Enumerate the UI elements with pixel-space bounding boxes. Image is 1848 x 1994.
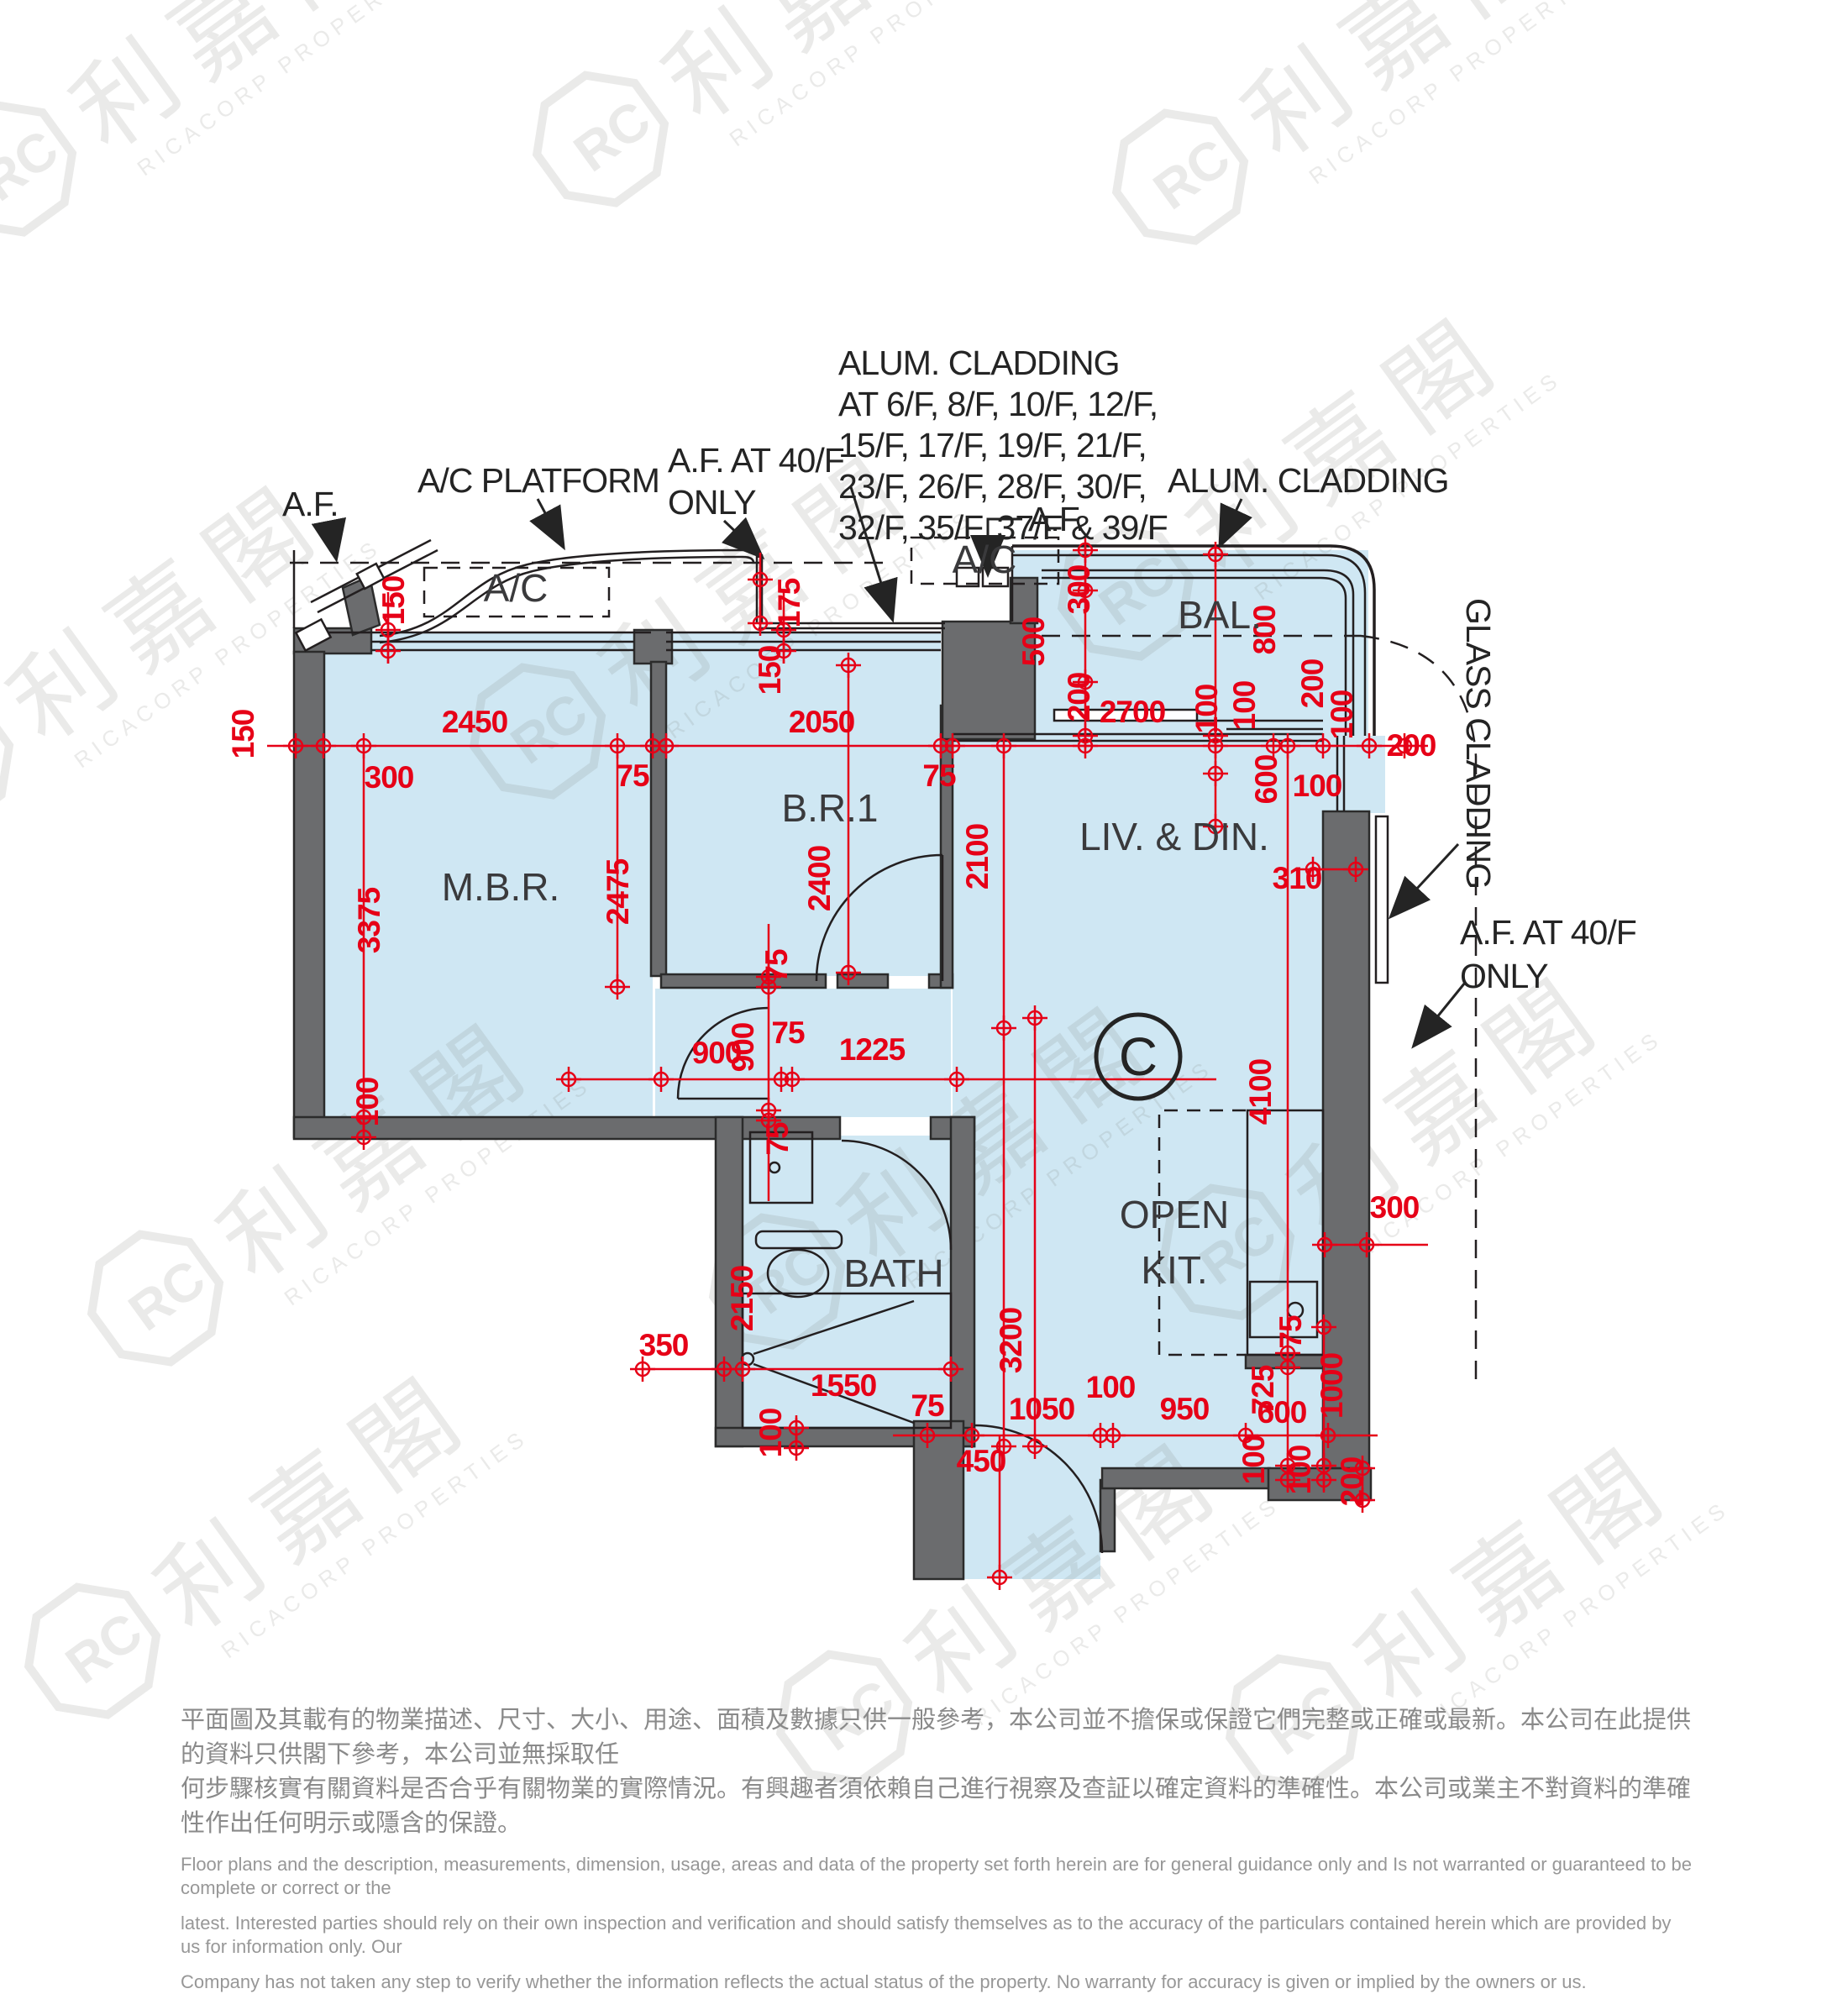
dim-label: 1050 xyxy=(1009,1392,1075,1426)
anno-af-balcony: A.F. xyxy=(1028,500,1084,538)
dim-label: 150 xyxy=(753,645,787,695)
disclaimer-block: 平面圖及其載有的物業描述、尺寸、大小、用途、面積及數據只供一般參考，本公司並不擔… xyxy=(181,1703,1693,1994)
unit-mark-letter: C xyxy=(1119,1026,1158,1087)
disclaimer-en-line2: latest. Interested parties should rely o… xyxy=(181,1912,1693,1959)
dim-label: 3375 xyxy=(352,887,386,953)
watermark: RC利嘉閣RICACORP PROPERTIES xyxy=(8,1321,533,1760)
anno-af-left: A.F. xyxy=(282,485,339,523)
dim-label: 75 xyxy=(922,758,956,793)
dim-label: 200 xyxy=(1062,672,1096,722)
dim-label: 75 xyxy=(616,758,649,793)
watermark: RC利嘉閣RICACORP PROPERTIES xyxy=(0,0,449,278)
leader-glass-cladding xyxy=(1392,844,1458,916)
dim-label: 1550 xyxy=(811,1368,877,1403)
room-label-bath: BATH xyxy=(843,1251,943,1295)
anno-ac-platform: A/C PLATFORM xyxy=(417,461,659,500)
dim-label: 75 xyxy=(759,949,794,983)
dim-label: 2475 xyxy=(601,858,635,925)
leader-ac-platform xyxy=(538,499,563,546)
dim-label: 350 xyxy=(639,1328,689,1362)
dim-label: 1000 xyxy=(1315,1352,1349,1419)
dim-label: 450 xyxy=(957,1444,1006,1478)
dim-label: 300 xyxy=(365,760,414,795)
wall xyxy=(837,974,888,988)
disclaimer-en-line1: Floor plans and the description, measure… xyxy=(181,1853,1693,1900)
dim-label: 2150 xyxy=(725,1265,759,1331)
dim-label: 3200 xyxy=(994,1307,1028,1373)
dim-label: 2100 xyxy=(960,823,995,889)
dim-label: 2050 xyxy=(789,705,855,739)
dim-label: 600 xyxy=(1257,1395,1307,1430)
dim-label: 100 xyxy=(1293,769,1342,803)
anno-glass-cladding: GLASS CLADDING xyxy=(1459,598,1498,889)
disclaimer-en-line3: Company has not taken any step to verify… xyxy=(181,1970,1693,1994)
wall-mbr-br1 xyxy=(651,662,666,976)
room-label-br1: B.R.1 xyxy=(781,786,878,830)
dim-label: 100 xyxy=(753,1408,788,1457)
dim-label: 2450 xyxy=(442,705,508,739)
dim-label: 200 xyxy=(1335,1456,1369,1506)
dim-label: 175 xyxy=(772,578,806,627)
room-label-balcony: BAL. xyxy=(1178,593,1262,637)
wall-bath-right xyxy=(951,1117,974,1446)
dim-label: 310 xyxy=(1273,861,1322,895)
dim-label: 150 xyxy=(226,709,260,758)
room-label-living-dining: LIV. & DIN. xyxy=(1079,815,1269,858)
dim-label: 900 xyxy=(726,1022,760,1072)
dim-label: 2400 xyxy=(802,845,837,911)
glass-cladding-strip xyxy=(1376,816,1388,983)
anno-alum-cladding-floors: ALUM. CLADDINGAT 6/F, 8/F, 10/F, 12/F,15… xyxy=(838,344,1168,547)
dim-label: 950 xyxy=(1160,1392,1210,1426)
wall xyxy=(294,652,324,1137)
watermark: RC利嘉閣RICACORP PROPERTIES xyxy=(1095,0,1620,286)
disclaimer-cn-line1: 平面圖及其載有的物業描述、尺寸、大小、用途、面積及數據只供一般參考，本公司並不擔… xyxy=(181,1703,1693,1772)
disclaimer-cn-line2: 何步驟核實有關資料是否合乎有關物業的實際情況。有興趣者須依賴自己進行視察及查証以… xyxy=(181,1772,1693,1841)
dim-label: 100 xyxy=(350,1077,385,1126)
dim-label: 4100 xyxy=(1243,1058,1278,1125)
room-label-ac-1: A/C xyxy=(484,566,549,610)
dim-label: 75 xyxy=(771,1015,805,1050)
dim-label: 100 xyxy=(1325,690,1359,739)
dim-label: 100 xyxy=(1283,1445,1317,1494)
watermark: RC利嘉閣RICACORP PROPERTIES xyxy=(516,0,1041,249)
floor-plan-page: { "colors": { "floor_fill": "#cfe7f3", "… xyxy=(0,0,1848,1848)
dim-label: 200 xyxy=(1387,728,1436,763)
wall-af-fin xyxy=(343,576,380,635)
dim-label: 100 xyxy=(1236,1435,1271,1484)
dim-label: 300 xyxy=(1370,1190,1420,1225)
dim-label: 100 xyxy=(1189,684,1224,733)
anno-alum-cladding: ALUM. CLADDING xyxy=(1168,461,1449,500)
dim-label: 600 xyxy=(1249,754,1284,804)
dim-label: 75 xyxy=(1273,1315,1308,1349)
room-label-mbr: M.B.R. xyxy=(442,865,560,909)
dim-label: 150 xyxy=(376,575,411,625)
dim-label: 100 xyxy=(1086,1370,1136,1404)
dim-label: 500 xyxy=(1016,617,1051,666)
dim-label: 300 xyxy=(1062,564,1096,614)
dim-label: 75 xyxy=(911,1388,944,1423)
wall xyxy=(634,630,672,664)
wall-br1-bottom xyxy=(661,974,826,988)
floor-plan-drawing: RC利嘉閣RICACORP PROPERTIESRC利嘉閣RICACORP PR… xyxy=(0,0,1848,1848)
dim-label: 2700 xyxy=(1100,695,1166,729)
dim-label: 100 xyxy=(1227,680,1262,730)
dim-label: 75 xyxy=(760,1122,795,1156)
dim-label: 1225 xyxy=(839,1032,906,1067)
